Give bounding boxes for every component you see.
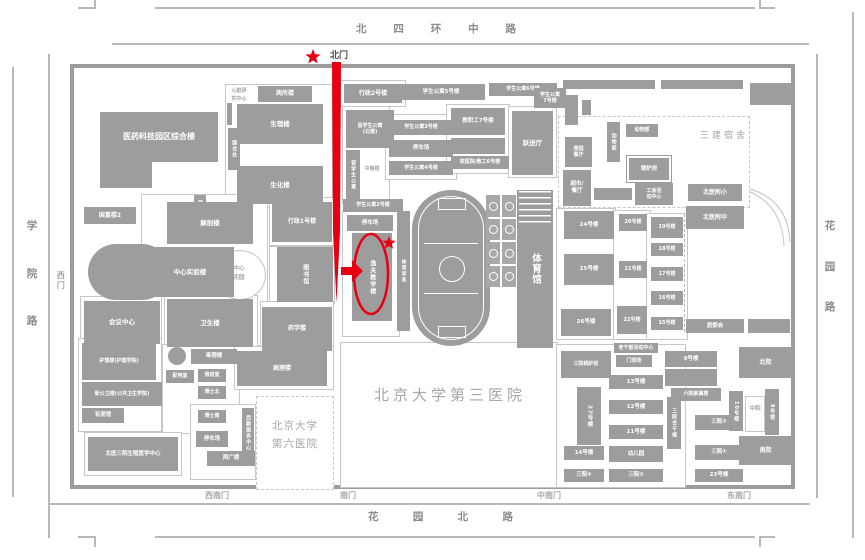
road-name-char: 院 [27,266,38,281]
bldg-24: 24号楼 [564,211,614,239]
road-name-char: 花 [825,218,836,233]
hospital3-label: 北京大学第三医院 [355,385,545,407]
road-line [155,536,755,538]
kindergarten: 幼儿园 [609,446,663,462]
stadium-track [412,190,490,346]
bldg-16: 16号楼 [651,291,683,305]
court-tile [486,242,500,264]
bldg-11: 11号楼 [609,425,663,439]
parking-sw: 停车场 [196,431,228,447]
north-gate-star-icon [305,49,320,64]
bar-boiler-south [594,188,632,200]
boshi-south: 博士南 [198,410,226,423]
sanyuan-4: 三院④ [564,469,604,482]
animal-dept-h: 动物部 [626,124,658,137]
north-court: 北院 [739,347,792,378]
center-circle [439,256,465,282]
zhongyuan-label: 中院 [745,398,765,422]
bldg-18: 18号楼 [651,243,683,256]
small-annex-building [227,103,232,125]
road-name-char: 北 [356,21,367,35]
juweihui: 居委会 [686,319,744,333]
bldg-10: 10号楼 [729,391,743,431]
gateball-court: 门球场 [616,355,652,367]
veteran-center: 老干部活动中心 [614,343,658,353]
medtech-ext [100,158,152,188]
parking-center: 停车场 [347,215,393,231]
hospital3-boiler: 三院锅炉房 [561,351,611,378]
dorm-2: 学生公寓2号楼 [343,199,403,212]
animal-dept-v: 动物部 [607,122,620,162]
bldg-19: 19号楼 [651,217,683,238]
admin-2: 行政2号楼 [344,84,402,103]
sanyuan-3: 三院③ [609,469,663,482]
parking-north: 停车场 [389,140,453,157]
road-line [94,538,96,547]
bldg-26: 26号楼 [561,309,611,336]
goal-box [438,326,466,338]
court-circle [505,202,514,211]
bldg-17: 17号楼 [651,267,683,281]
court-tile [486,266,500,288]
court-tile [486,195,500,217]
staff-bar [451,138,505,154]
road-xueyuan: 学院路 [24,218,40,328]
road-line [759,7,775,9]
dorm-3: 学生公寓3号楼 [389,120,453,135]
court-circle [489,225,498,234]
library: 图书馆 [277,247,333,302]
houqin-center: 后勤服务中心 [242,408,254,458]
road-name-char: 路 [502,509,513,523]
road-name-char: 环 [431,21,442,35]
duli-round [168,347,186,365]
zhiban-room: 值班室 [198,369,226,382]
medtech-complex: 医药科技园区综合楼 [100,112,218,162]
bldg-8: 8号楼 [765,389,779,435]
ne-bar-3 [750,83,792,105]
sanjian-dorm: 三建宿舍 [692,128,756,146]
public-health-bldg: 新公卫楼(公共卫生学院) [82,382,162,406]
road-name-char: 花 [368,509,379,523]
bldg-15: 15号楼 [651,317,683,330]
court-tile [486,219,500,241]
basketball-courts [486,195,516,287]
boiler-house: 锅炉房 [627,156,671,182]
fence-east [684,214,685,332]
guohe-office: 国合处 [228,128,240,170]
dorm-5: 学生公寓5号楼 [397,84,485,100]
admin-1: 行政1号楼 [272,202,332,242]
duli-bldg: 毒理楼 [191,349,237,364]
nursing-bldg: 护理楼(护理学院) [82,343,156,380]
gate-midsouth-label: 中南门 [530,490,568,502]
road-line [759,538,761,547]
gate-north-label: 北门 [325,50,353,63]
road-line [852,12,854,538]
bldg-22: 22号楼 [617,306,647,334]
hospital3-hegan: 三院合干楼 [667,397,681,449]
court-circle [489,272,498,281]
ne-bar-1 [563,80,655,89]
road-line [759,0,761,9]
road-name-char: 路 [27,313,38,328]
dorm-4: 学生公寓4号楼 [389,161,453,175]
road-line [48,54,50,538]
hospital6-label: 北京大学 第六医院 [258,408,332,464]
shenghua-bldg: 生化楼 [237,166,323,204]
road-line [50,503,810,505]
union-center: 工会活 动中心 [635,183,673,205]
beiyi-primary: 北医附小 [688,184,742,201]
guozhong-2: 国重楼2 [84,207,136,224]
road-name-char: 路 [506,21,517,35]
bldg-25: 25号楼 [564,254,614,285]
court-tile [502,195,516,217]
road-line [759,536,775,538]
shengli-bldg: 生理楼 [237,104,323,144]
yuejin-hall: 跃进厅 [512,111,553,175]
ne-small [582,100,591,115]
road-line [12,67,14,497]
road-name-char: 学 [27,218,38,233]
reproductive-center: 北医三院生殖医学中心 [88,437,178,471]
youpeng-hall: 有朋馆 [82,408,124,423]
intl-dorm-north: 留学生公寓 (北楼) [346,110,394,148]
court-circle [505,225,514,234]
field-line [424,243,478,244]
jiepou-bldg: 解剖楼 [167,202,253,244]
road-name-char: 北 [458,509,469,523]
gate-south-label: 南门 [334,490,362,502]
peidian-room: 配电室 [166,370,194,383]
road-line [94,0,96,9]
campus-hospital-staff6: 校医院/教工6号楼 [451,156,509,169]
bldg-13: 13号楼 [609,375,663,389]
gymnasium-stairs [519,191,551,227]
yifu-teaching-bldg: 逸夫教学楼 [352,233,392,321]
bldg-21: 21号楼 [619,261,647,278]
south-court: 南院 [739,436,792,465]
road-name-char: 园 [413,509,424,523]
area-hospital3 [340,342,558,488]
ne-bar-2 [661,80,743,89]
market-canteen: 超市/ 餐厅 [563,170,591,206]
bldg-27: 27号楼 [577,387,601,445]
court-tile [502,242,516,264]
court-circle [505,249,514,258]
yaoxue-bldg: 药学楼 [262,307,332,351]
court-circle [489,249,498,258]
yanyuan-canteen: 燕园 餐厅 [565,137,592,167]
bldg-14: 14号楼 [564,446,604,460]
road-line [155,7,755,9]
road-north-fourth-ring: 北四环中路 [356,21,516,35]
sanyuan-1: 三院① [695,445,743,460]
road-name-char: 中 [468,21,479,35]
heart-research-center: 心脏研 究中心 [224,86,254,104]
ne-vbar [565,95,578,125]
gate-southwest-label: 西南门 [198,490,236,502]
field-line [424,293,478,294]
bldg-9: 9号楼 [665,351,717,367]
road-name-char: 园 [825,259,836,274]
road-huayuan: 花园路 [822,218,838,314]
gate-west-label: 西门 [54,266,67,296]
court-tile [502,219,516,241]
gate-southeast-label: 东南门 [720,490,758,502]
boshi-north: 博士北 [198,386,226,399]
bar-9-south [665,369,717,386]
intl-dorm-mid: 留学生公寓 [346,150,360,200]
zhongnanlou-label: 中南楼 [360,164,384,174]
court-circle [505,272,514,281]
road-name-char: 四 [393,21,404,35]
weisheng-bldg: 卫生楼 [167,299,253,347]
conference-center: 会议中心 [84,301,160,344]
staff-7: 教职工7号楼 [451,108,505,135]
pe-dept: 体育学系 [397,211,410,331]
court-circle [489,202,498,211]
central-garden-label: 中心 花园 [221,259,257,289]
dorm-7: 学生公寓 7号楼 [534,88,566,108]
goal-box [438,198,466,210]
court-tile [502,266,516,288]
road-huayuan-north: 花园北路 [368,509,513,523]
bldg-23: 23号楼 [695,469,743,482]
bldg-12: 12号楼 [609,400,663,414]
bingli-bldg: 病理楼 [237,351,327,386]
liangsuo-bldg: 两所楼 [258,86,312,102]
beiyi-middle: 北医附中 [686,206,744,229]
campus-map: 医药科技园区综合楼两所楼生理楼国合处生化楼国重楼2国重楼1解剖楼中心实验楼行政1… [0,0,865,560]
bar-juweihui-east [748,319,790,333]
road-line [112,43,809,45]
bldg-20: 20号楼 [619,214,647,231]
road-name-char: 路 [825,299,836,314]
road-line [816,54,818,498]
